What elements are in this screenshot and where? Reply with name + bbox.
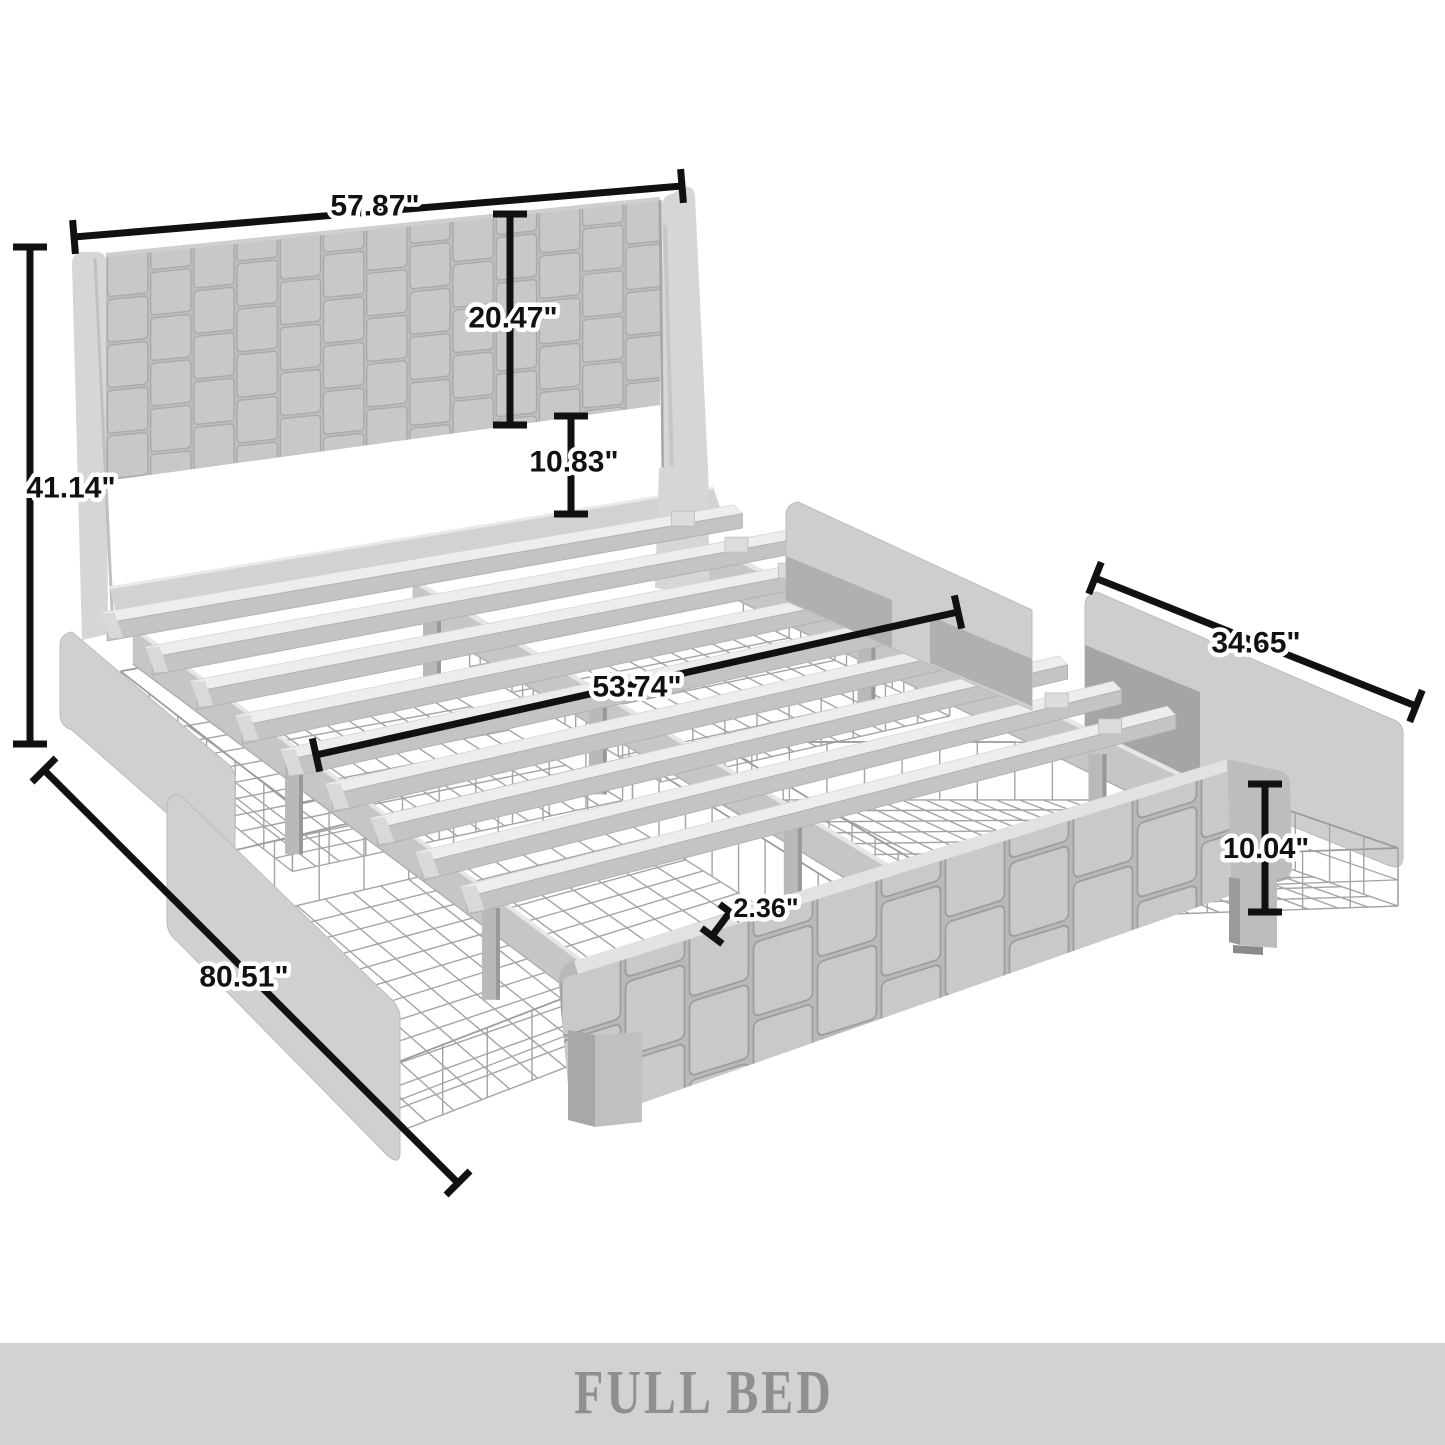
svg-text:41.14": 41.14" bbox=[26, 472, 115, 505]
svg-text:57.87": 57.87" bbox=[330, 190, 419, 223]
svg-text:10.04": 10.04" bbox=[1223, 833, 1309, 865]
svg-text:10.83": 10.83" bbox=[529, 446, 618, 479]
svg-text:53.74": 53.74" bbox=[592, 671, 681, 704]
svg-text:80.51": 80.51" bbox=[199, 961, 288, 994]
svg-text:2.36": 2.36" bbox=[733, 893, 798, 923]
svg-text:34.65": 34.65" bbox=[1211, 627, 1300, 660]
svg-text:FULL BED: FULL BED bbox=[574, 1358, 834, 1428]
svg-text:20.47": 20.47" bbox=[468, 302, 557, 335]
